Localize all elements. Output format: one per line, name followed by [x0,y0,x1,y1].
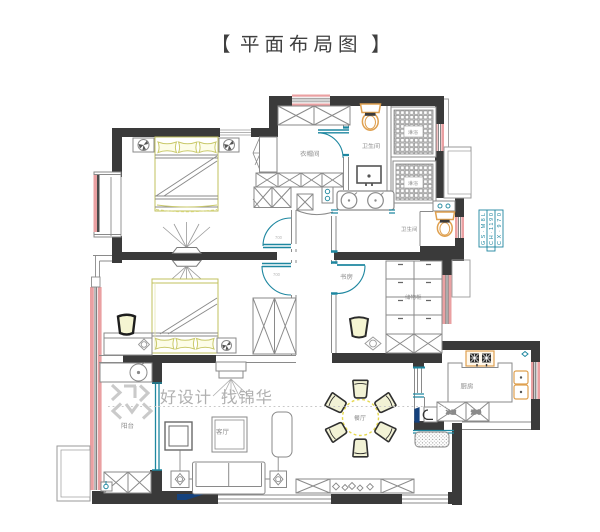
svg-text:700: 700 [275,235,283,240]
svg-text:CH·1190: CH·1190 [489,213,495,245]
svg-text:700: 700 [273,272,281,277]
